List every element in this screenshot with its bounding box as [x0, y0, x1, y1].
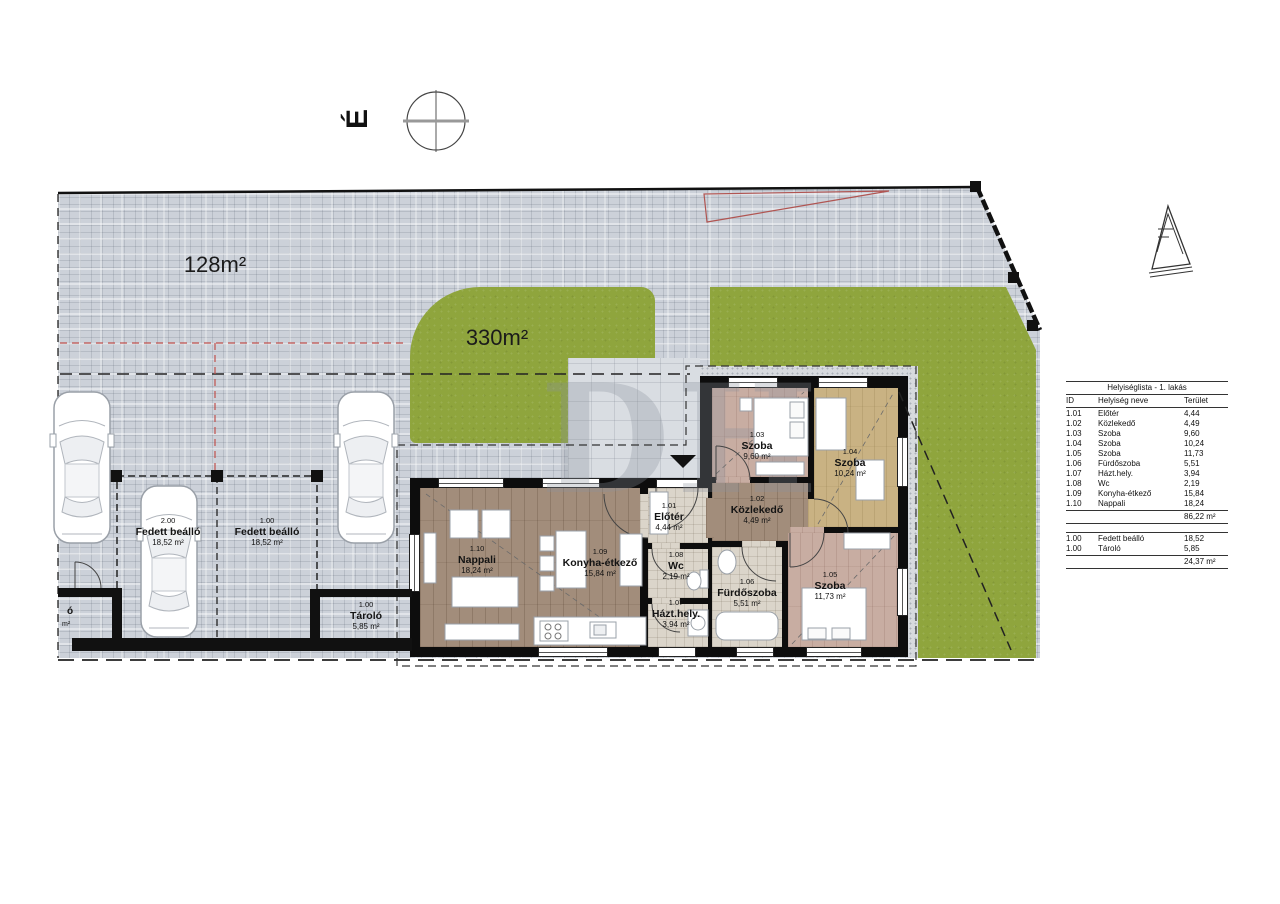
room-table-rows-main: 1.01Előtér4,441.02Közlekedő4,491.03Szoba…: [1066, 408, 1228, 511]
room-label-hazt: 1.07 Házt.hely. 3,94 m²: [652, 599, 700, 629]
table-row: 1.07Házt.hely.3,94: [1066, 469, 1228, 479]
label-fedett-beallo-2: 2.00 Fedett beálló 18,52 m²: [136, 517, 201, 547]
survey-marker-icon: [1149, 206, 1193, 277]
edge-label-fragment-area: m²: [62, 621, 70, 628]
paved-area-label: 128m²: [184, 252, 246, 278]
table-row: 1.00Tároló5,85: [1066, 544, 1228, 554]
car-top-view: [50, 392, 398, 637]
north-symbol-icon: [403, 90, 469, 152]
room-list-header: ID Helyiség neve Terület: [1066, 395, 1228, 408]
label-fedett-beallo-1: 1.00 Fedett beálló 18,52 m²: [235, 517, 300, 547]
room-label-szoba-103: 1.03 Szoba 9,60 m²: [742, 431, 773, 461]
room-table-rows-outdoor: 1.00Fedett beálló18,521.00Tároló5,85: [1066, 532, 1228, 556]
floor-plan-page: DH: [0, 0, 1280, 904]
table-row: 1.04Szoba10,24: [1066, 439, 1228, 449]
edge-label-fragment: ó: [67, 606, 73, 617]
table-row: 1.06Fürdőszoba5,51: [1066, 459, 1228, 469]
room-label-szoba-104: 1.04 Szoba 10,24 m²: [834, 448, 866, 478]
table-row: 1.09Konyha-étkező15,84: [1066, 489, 1228, 499]
table-row: 1.05Szoba11,73: [1066, 449, 1228, 459]
table-row: 1.10Nappali18,24: [1066, 499, 1228, 509]
north-letter: É: [341, 109, 375, 129]
table-row: 1.01Előtér4,44: [1066, 409, 1228, 419]
room-label-furdoszoba: 1.06 Fürdőszoba 5,51 m²: [717, 578, 777, 608]
room-table-subtotal-outdoor: 24,37 m²: [1066, 556, 1228, 569]
room-table-subtotal-main: 86,22 m²: [1066, 511, 1228, 524]
table-row: 1.08Wc2,19: [1066, 479, 1228, 489]
lawn-area-label: 330m²: [466, 325, 528, 351]
room-label-szoba-105: 1.05 Szoba 11,73 m²: [815, 571, 846, 601]
room-label-eloter: 1.01 Előtér 4,44 m²: [654, 502, 684, 532]
room-list-title: Helyiséglista - 1. lakás: [1066, 381, 1228, 395]
table-row: 1.02Közlekedő4,49: [1066, 419, 1228, 429]
label-tarolo: 1.00 Tároló 5,85 m²: [350, 601, 382, 631]
entrance-arrow-icon: [670, 455, 696, 468]
room-label-nappali: 1.10 Nappali 18,24 m²: [458, 545, 496, 575]
room-label-wc: 1.08 Wc 2,19 m²: [662, 551, 689, 581]
room-label-kozlekedo: 1.02 Közlekedő 4,49 m²: [731, 495, 784, 525]
room-list-table: Helyiséglista - 1. lakás ID Helyiség nev…: [1066, 381, 1228, 569]
table-row: 1.03Szoba9,60: [1066, 429, 1228, 439]
table-row: 1.00Fedett beálló18,52: [1066, 534, 1228, 544]
room-label-konyha: 1.09 Konyha-étkező 15,84 m²: [563, 548, 638, 578]
